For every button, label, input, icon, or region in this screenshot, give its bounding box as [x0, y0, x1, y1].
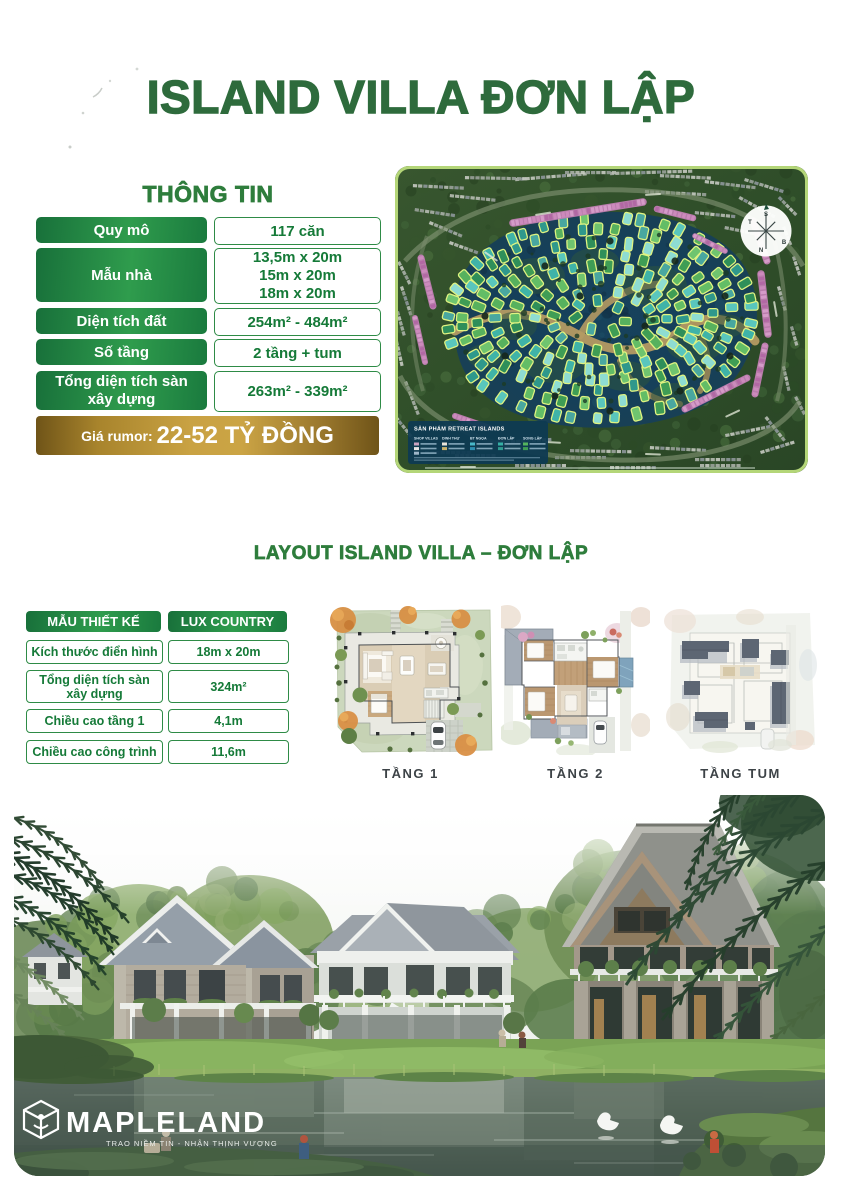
svg-text:B: B	[782, 240, 787, 246]
svg-text:S: S	[764, 212, 768, 218]
svg-text:MAPLELAND: MAPLELAND	[66, 1107, 266, 1139]
svg-text:ĐƠN LẬP: ĐƠN LẬP	[498, 436, 515, 441]
svg-text:SẢN PHẨM RETREAT ISLANDS: SẢN PHẨM RETREAT ISLANDS	[414, 426, 505, 433]
svg-text:BT NGỌA: BT NGỌA	[470, 437, 487, 441]
svg-text:N: N	[759, 248, 763, 254]
svg-text:T: T	[748, 220, 752, 226]
svg-text:TRAO NIỀM TIN - NHẬN THỊNH VƯỢ: TRAO NIỀM TIN - NHẬN THỊNH VƯỢNG	[106, 1138, 278, 1148]
svg-text:SONG LẬP: SONG LẬP	[523, 436, 542, 441]
svg-text:SHOP VILLAS: SHOP VILLAS	[414, 437, 438, 441]
svg-text:DINH THỰ: DINH THỰ	[442, 437, 460, 441]
